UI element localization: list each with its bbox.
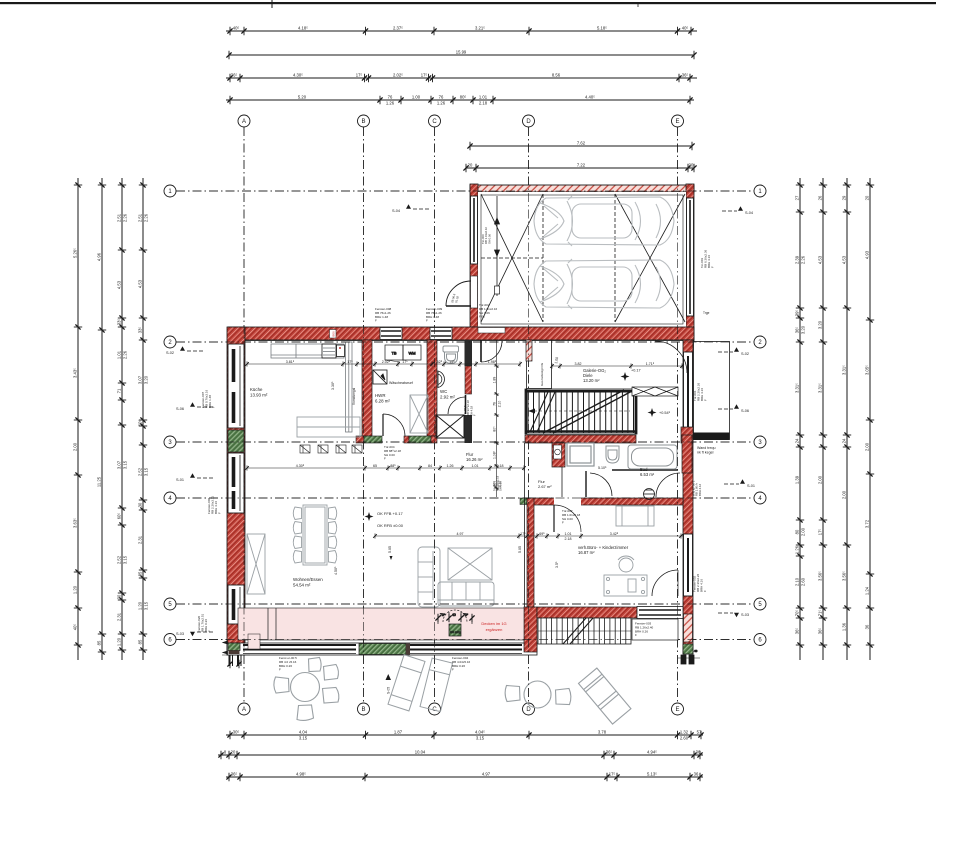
svg-text:6.53 m²: 6.53 m² — [640, 472, 655, 477]
svg-text:F: F — [703, 590, 707, 592]
svg-text:2.18: 2.18 — [497, 464, 504, 468]
svg-text:36⁵: 36⁵ — [606, 750, 613, 755]
svg-text:B06: B06 — [332, 331, 336, 337]
svg-text:36: 36 — [696, 750, 701, 755]
svg-text:OK RFB ±0.00: OK RFB ±0.00 — [377, 523, 404, 528]
svg-text:F: F — [217, 512, 221, 514]
svg-text:F: F — [384, 457, 386, 461]
svg-text:6.28 m²: 6.28 m² — [375, 398, 390, 403]
svg-text:4.04: 4.04 — [299, 730, 308, 735]
svg-text:57: 57 — [697, 730, 702, 735]
svg-text:F.06: F.06 — [479, 315, 485, 319]
svg-text:15⁵: 15⁵ — [449, 360, 455, 364]
svg-text:4.40⁵: 4.40⁵ — [585, 95, 595, 100]
svg-text:1.26: 1.26 — [437, 101, 446, 106]
svg-text:3.31⁵: 3.31⁵ — [818, 383, 823, 393]
svg-text:80⁵: 80⁵ — [460, 95, 467, 100]
svg-text:+0.17: +0.17 — [631, 369, 641, 373]
svg-text:SH 0.06: SH 0.06 — [487, 233, 491, 244]
svg-text:54.54 m²: 54.54 m² — [293, 582, 311, 587]
svg-text:S-04: S-04 — [392, 209, 400, 213]
svg-text:S-02: S-02 — [741, 352, 749, 356]
svg-text:S-06: S-06 — [176, 407, 184, 411]
svg-text:1.08⁵: 1.08⁵ — [492, 450, 496, 459]
svg-text:76: 76 — [388, 95, 393, 100]
svg-text:1.71⁵: 1.71⁵ — [646, 362, 655, 366]
svg-text:70⁵: 70⁵ — [795, 610, 800, 617]
svg-text:7.22: 7.22 — [577, 163, 586, 168]
svg-text:13.20 m²: 13.20 m² — [583, 378, 600, 383]
svg-text:F: F — [562, 521, 564, 525]
svg-text:F: F — [279, 668, 281, 672]
svg-text:26: 26 — [818, 195, 823, 200]
svg-text:2.51: 2.51 — [138, 213, 143, 222]
svg-text:4.53: 4.53 — [842, 255, 847, 264]
svg-text:2.00: 2.00 — [801, 527, 806, 536]
svg-text:3.78: 3.78 — [598, 730, 607, 735]
svg-text:4.53: 4.53 — [138, 279, 143, 288]
svg-text:BRH 4.16: BRH 4.16 — [707, 255, 711, 268]
svg-text:2.31: 2.31 — [138, 535, 143, 544]
svg-text:3.20: 3.20 — [818, 320, 823, 329]
svg-text:3.07: 3.07 — [117, 460, 122, 469]
svg-text:76: 76 — [439, 95, 444, 100]
svg-text:2.00: 2.00 — [73, 442, 78, 451]
svg-text:GG mkg: GG mkg — [450, 630, 461, 634]
svg-text:17⁵: 17⁵ — [356, 73, 363, 78]
svg-text:3.31⁵: 3.31⁵ — [842, 365, 847, 375]
svg-text:2.02⁵: 2.02⁵ — [382, 360, 391, 364]
svg-text:WC: WC — [440, 389, 447, 394]
svg-text:3.15: 3.15 — [144, 467, 149, 476]
svg-text:F: F — [452, 668, 454, 672]
svg-text:17⁵: 17⁵ — [609, 772, 616, 777]
svg-text:S-03: S-03 — [176, 632, 184, 636]
svg-text:1.20: 1.20 — [117, 637, 122, 646]
svg-text:BRH 0.26: BRH 0.26 — [635, 629, 648, 633]
svg-text:3.15: 3.15 — [144, 601, 149, 610]
svg-text:4.30⁵: 4.30⁵ — [296, 464, 305, 468]
svg-text:S-06: S-06 — [741, 409, 749, 413]
svg-text:2.00: 2.00 — [842, 490, 847, 499]
svg-text:4.50⁵: 4.50⁵ — [334, 566, 338, 575]
svg-text:S-05: S-05 — [387, 687, 391, 694]
svg-text:Küche: Küche — [250, 387, 263, 392]
svg-text:1.01: 1.01 — [117, 350, 122, 359]
svg-text:1.20: 1.20 — [73, 585, 78, 594]
svg-text:BRH 1.48: BRH 1.48 — [426, 315, 439, 319]
svg-text:1.36: 1.36 — [842, 622, 847, 631]
svg-text:D: D — [526, 119, 531, 125]
svg-text:Ges.befestigt OG: Ges.befestigt OG — [540, 362, 544, 386]
svg-text:BRH 0.26: BRH 0.26 — [204, 619, 208, 632]
svg-text:5.05: 5.05 — [518, 546, 522, 553]
svg-text:8.56: 8.56 — [552, 73, 561, 78]
svg-text:3.56⁵: 3.56⁵ — [842, 571, 847, 581]
svg-text:29: 29 — [842, 195, 847, 200]
svg-text:33⁵: 33⁵ — [138, 327, 143, 334]
svg-text:WM: WM — [408, 351, 415, 356]
svg-text:5.05: 5.05 — [388, 546, 392, 553]
svg-text:85: 85 — [138, 639, 143, 644]
svg-text:2.51: 2.51 — [117, 213, 122, 222]
svg-text:BRH 1.48: BRH 1.48 — [375, 315, 388, 319]
svg-text:4.53: 4.53 — [117, 280, 122, 289]
svg-text:4.93: 4.93 — [865, 250, 870, 259]
svg-text:36⁵: 36⁵ — [795, 327, 800, 334]
svg-text:36: 36 — [694, 772, 699, 777]
svg-text:17⁵: 17⁵ — [818, 529, 823, 536]
svg-text:S-01: S-01 — [176, 478, 184, 482]
svg-text:F: F — [635, 633, 637, 637]
svg-text:36: 36 — [865, 624, 870, 629]
svg-text:BRH 0.26: BRH 0.26 — [452, 664, 465, 668]
svg-text:2.52: 2.52 — [138, 467, 143, 476]
svg-text:7.62: 7.62 — [577, 141, 586, 146]
svg-text:33⁵: 33⁵ — [117, 319, 122, 326]
svg-text:16.26 m²: 16.26 m² — [466, 457, 483, 462]
svg-text:71⁵: 71⁵ — [818, 610, 823, 617]
svg-text:10.04: 10.04 — [415, 750, 426, 755]
svg-text:1.01: 1.01 — [565, 532, 572, 536]
svg-text:2.31: 2.31 — [117, 612, 122, 621]
svg-text:OK FFB +0.17: OK FFB +0.17 — [377, 511, 403, 516]
svg-text:3.56⁵: 3.56⁵ — [818, 571, 823, 581]
svg-text:F: F — [473, 414, 477, 416]
svg-text:3.63⁵: 3.63⁵ — [73, 518, 78, 528]
svg-text:73⁵: 73⁵ — [440, 613, 446, 617]
svg-text:F: F — [703, 399, 707, 401]
svg-text:1.01: 1.01 — [479, 95, 488, 100]
svg-text:3.21⁵: 3.21⁵ — [475, 26, 485, 31]
svg-text:BRH 0.26: BRH 0.26 — [279, 664, 292, 668]
svg-text:1.87: 1.87 — [394, 730, 403, 735]
svg-text:3.15: 3.15 — [123, 460, 128, 469]
svg-text:2.60: 2.60 — [801, 577, 806, 586]
svg-text:BRH 1.48: BRH 1.48 — [208, 395, 212, 408]
svg-text:71: 71 — [117, 388, 122, 393]
svg-text:BRH 4.16: BRH 4.16 — [699, 579, 703, 592]
svg-text:69⁵: 69⁵ — [539, 532, 545, 536]
svg-text:2.26: 2.26 — [801, 255, 806, 264]
svg-text:B: B — [361, 707, 365, 713]
svg-text:17⁵: 17⁵ — [347, 360, 353, 364]
svg-text:2.18: 2.18 — [565, 537, 572, 541]
svg-text:40⁵: 40⁵ — [682, 26, 689, 31]
svg-text:3.15: 3.15 — [476, 736, 485, 741]
svg-text:20: 20 — [231, 750, 236, 755]
svg-text:39⁵: 39⁵ — [795, 310, 800, 317]
svg-text:80: 80 — [795, 529, 800, 534]
svg-text:1.98⁵: 1.98⁵ — [488, 360, 497, 364]
svg-text:76: 76 — [492, 402, 496, 406]
svg-text:2.02⁵: 2.02⁵ — [393, 73, 403, 78]
svg-text:17⁵: 17⁵ — [402, 360, 408, 364]
svg-text:ergänzen: ergänzen — [486, 627, 503, 632]
svg-text:24: 24 — [795, 438, 800, 443]
svg-text:2.26: 2.26 — [144, 213, 149, 222]
svg-text:1.89: 1.89 — [492, 377, 496, 384]
svg-text:3.82: 3.82 — [575, 362, 582, 366]
svg-text:20: 20 — [865, 195, 870, 200]
svg-text:nk ft kegel: nk ft kegel — [697, 451, 714, 455]
svg-text:1.01: 1.01 — [472, 464, 479, 468]
svg-text:4.97: 4.97 — [482, 772, 491, 777]
svg-text:3.05⁵: 3.05⁵ — [865, 365, 870, 375]
svg-text:SH 0.00: SH 0.00 — [499, 481, 503, 491]
svg-text:88⁵: 88⁵ — [390, 464, 396, 468]
svg-text:Decken im 1G: Decken im 1G — [481, 621, 506, 626]
svg-text:F: F — [710, 266, 714, 268]
svg-text:73⁵: 73⁵ — [463, 613, 469, 617]
svg-text:F: F — [426, 319, 428, 323]
svg-text:4.18⁵: 4.18⁵ — [298, 26, 308, 31]
svg-text:5.26⁵: 5.26⁵ — [73, 248, 78, 258]
svg-text:1.26: 1.26 — [447, 464, 454, 468]
svg-text:4.98⁵: 4.98⁵ — [296, 772, 306, 777]
svg-text:3.31⁵: 3.31⁵ — [795, 383, 800, 393]
svg-text:85: 85 — [97, 640, 102, 645]
svg-text:1.32: 1.32 — [680, 730, 689, 735]
svg-text:40⁵: 40⁵ — [233, 26, 240, 31]
svg-text:5.13⁵: 5.13⁵ — [647, 772, 657, 777]
svg-text:2.52: 2.52 — [117, 555, 122, 564]
svg-text:S-02: S-02 — [166, 351, 174, 355]
svg-text:TB: TB — [391, 351, 396, 356]
svg-text:4.96: 4.96 — [97, 252, 102, 261]
svg-text:BRH 4.16: BRH 4.16 — [214, 501, 218, 514]
svg-text:4.97: 4.97 — [457, 532, 464, 536]
svg-text:3.20: 3.20 — [144, 375, 149, 384]
svg-text:15.99: 15.99 — [456, 50, 467, 55]
svg-text:2.26: 2.26 — [123, 213, 128, 222]
svg-text:36⁵: 36⁵ — [231, 73, 238, 78]
svg-text:16.87 m²: 16.87 m² — [578, 550, 595, 555]
svg-text:3.30⁵: 3.30⁵ — [331, 381, 335, 390]
svg-text:S-01: S-01 — [747, 484, 755, 488]
svg-text:65: 65 — [373, 464, 377, 468]
svg-text:36⁵: 36⁵ — [231, 772, 238, 777]
svg-text:3.81⁵: 3.81⁵ — [286, 360, 295, 364]
svg-text:5.20: 5.20 — [298, 95, 307, 100]
svg-text:20: 20 — [689, 163, 694, 168]
svg-text:3.07: 3.07 — [138, 375, 143, 384]
svg-text:3.42⁵: 3.42⁵ — [610, 532, 619, 536]
svg-text:36⁵: 36⁵ — [682, 73, 689, 78]
svg-text:30: 30 — [138, 502, 143, 507]
svg-text:3.15: 3.15 — [123, 555, 128, 564]
svg-text:Wohnen/Essen: Wohnen/Essen — [293, 577, 323, 582]
svg-text:84: 84 — [428, 464, 432, 468]
svg-text:17⁵: 17⁵ — [421, 73, 428, 78]
svg-text:27: 27 — [795, 195, 800, 200]
svg-text:3.43⁵: 3.43⁵ — [73, 368, 78, 378]
svg-text:Vorratsregal: Vorratsregal — [352, 388, 356, 405]
svg-text:F: F — [375, 319, 377, 323]
svg-text:2.92 m²: 2.92 m² — [440, 394, 455, 399]
svg-text:2.00: 2.00 — [818, 475, 823, 484]
svg-text:BRH 4.16: BRH 4.16 — [700, 388, 704, 401]
svg-text:+0.54⁵: +0.54⁵ — [659, 411, 671, 415]
svg-text:2.37⁵: 2.37⁵ — [393, 26, 403, 31]
svg-text:2.10: 2.10 — [795, 577, 800, 586]
svg-text:36⁵: 36⁵ — [795, 628, 800, 635]
svg-text:A: A — [242, 119, 246, 125]
svg-text:40⁵: 40⁵ — [73, 624, 78, 631]
svg-text:4.94⁵: 4.94⁵ — [647, 750, 657, 755]
svg-text:11.25: 11.25 — [97, 476, 102, 487]
svg-text:3.72: 3.72 — [865, 519, 870, 528]
svg-text:Trge: Trge — [703, 311, 710, 315]
svg-text:80⁵: 80⁵ — [492, 426, 496, 432]
svg-text:1.20: 1.20 — [138, 601, 143, 610]
svg-text:2.10: 2.10 — [498, 401, 502, 408]
svg-text:1.26: 1.26 — [386, 101, 395, 106]
svg-text:2.39: 2.39 — [795, 255, 800, 264]
svg-text:2.00: 2.00 — [865, 442, 870, 451]
svg-text:E: E — [675, 707, 679, 713]
svg-text:20: 20 — [468, 163, 473, 168]
svg-text:5.18⁵: 5.18⁵ — [597, 26, 607, 31]
svg-text:HWR: HWR — [375, 393, 386, 398]
svg-text:S-04: S-04 — [745, 211, 753, 215]
svg-text:1.62⁵: 1.62⁵ — [434, 360, 443, 364]
svg-text:2.67 m²: 2.67 m² — [538, 484, 552, 489]
svg-text:3.20: 3.20 — [801, 325, 806, 334]
svg-text:E: E — [675, 119, 679, 125]
svg-text:S-03: S-03 — [741, 613, 749, 617]
svg-text:2.26: 2.26 — [123, 350, 128, 359]
svg-text:1.24: 1.24 — [865, 586, 870, 595]
svg-text:Wand trequ: Wand trequ — [697, 446, 715, 450]
svg-text:2.18: 2.18 — [479, 101, 488, 106]
svg-text:4.30⁵: 4.30⁵ — [293, 73, 303, 78]
svg-text:4.53: 4.53 — [818, 255, 823, 264]
svg-text:5.10⁵: 5.10⁵ — [598, 466, 607, 470]
svg-text:85: 85 — [138, 571, 143, 576]
svg-text:1.00: 1.00 — [412, 95, 421, 100]
svg-text:3.15: 3.15 — [299, 736, 308, 741]
svg-text:36⁵: 36⁵ — [818, 628, 823, 635]
svg-text:B: B — [361, 119, 365, 125]
svg-text:30: 30 — [117, 594, 122, 599]
svg-text:A: A — [242, 707, 246, 713]
svg-text:BRH 4.16: BRH 4.16 — [698, 483, 702, 496]
svg-text:24: 24 — [842, 438, 847, 443]
svg-text:60⁵: 60⁵ — [138, 420, 143, 427]
svg-text:4.04⁵: 4.04⁵ — [475, 730, 485, 735]
svg-text:2.60: 2.60 — [680, 736, 689, 741]
svg-text:3.5⁵: 3.5⁵ — [555, 561, 559, 568]
svg-text:D: D — [526, 707, 531, 713]
svg-text:60⁵: 60⁵ — [117, 513, 122, 520]
svg-text:1.26: 1.26 — [795, 545, 800, 554]
svg-text:17⁵: 17⁵ — [520, 532, 526, 536]
svg-text:C: C — [432, 119, 437, 125]
svg-text:13.93 m²: 13.93 m² — [250, 392, 268, 397]
svg-text:40: 40 — [452, 613, 456, 617]
svg-text:40: 40 — [694, 649, 698, 653]
svg-text:Wäscheabwurf: Wäscheabwurf — [389, 381, 413, 385]
svg-text:1.39: 1.39 — [795, 475, 800, 484]
svg-text:30⁵: 30⁵ — [233, 730, 240, 735]
